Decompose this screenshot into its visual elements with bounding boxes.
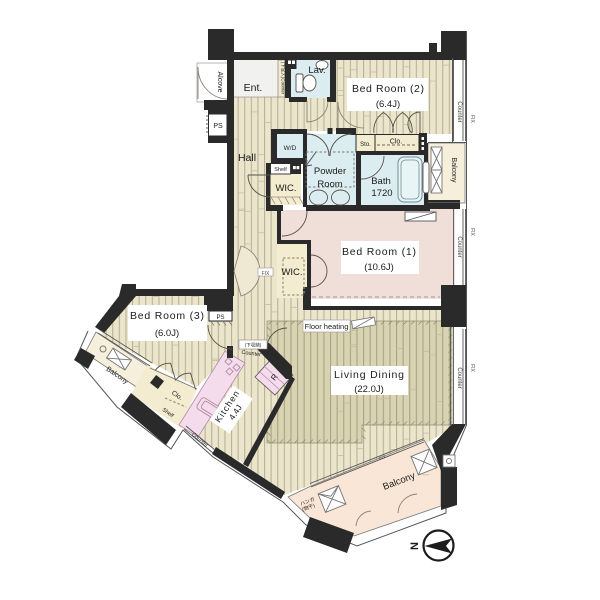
svg-text:WIC.: WIC.	[281, 267, 302, 278]
svg-text:Powder: Powder	[314, 166, 346, 177]
svg-text:Counter: Counter	[456, 236, 462, 257]
svg-text:(10.6J): (10.6J)	[364, 262, 394, 273]
svg-text:WIC.: WIC.	[275, 183, 296, 194]
svg-text:Bath: Bath	[371, 176, 391, 187]
svg-text:W/D: W/D	[284, 145, 297, 152]
svg-text:Clo.: Clo.	[390, 139, 403, 146]
svg-text:FIX: FIX	[469, 115, 475, 123]
svg-text:PS: PS	[213, 123, 223, 130]
svg-text:(下収納): (下収納)	[245, 342, 262, 349]
svg-text:Counter: Counter	[456, 367, 462, 388]
svg-text:Balcony: Balcony	[450, 158, 457, 183]
svg-text:Counter: Counter	[456, 101, 462, 122]
svg-text:Alcove: Alcove	[216, 71, 223, 92]
svg-text:(22.0J): (22.0J)	[354, 384, 384, 395]
svg-text:Sto.: Sto.	[360, 142, 371, 148]
svg-text:(6.4J): (6.4J)	[376, 99, 400, 110]
svg-text:Bed Room (1): Bed Room (1)	[342, 246, 416, 258]
svg-text:Room: Room	[317, 179, 342, 190]
svg-text:PS: PS	[216, 315, 224, 321]
svg-text:Living Dining: Living Dining	[334, 369, 404, 381]
svg-text:Ent.: Ent.	[244, 82, 263, 94]
svg-text:FIX: FIX	[469, 364, 475, 372]
svg-text:FIX: FIX	[469, 228, 475, 236]
svg-text:Floor heating: Floor heating	[305, 322, 349, 331]
svg-text:FIX: FIX	[262, 271, 270, 277]
svg-text:Lav.: Lav.	[308, 65, 325, 76]
svg-text:Bed Room (2): Bed Room (2)	[352, 83, 424, 95]
svg-text:Shelf: Shelf	[274, 167, 287, 173]
svg-text:(6.0J): (6.0J)	[155, 328, 179, 339]
svg-text:Hall: Hall	[238, 152, 256, 164]
svg-text:1720: 1720	[371, 188, 392, 199]
svg-text:N: N	[409, 542, 421, 550]
svg-text:Bed Room (3): Bed Room (3)	[130, 310, 204, 322]
